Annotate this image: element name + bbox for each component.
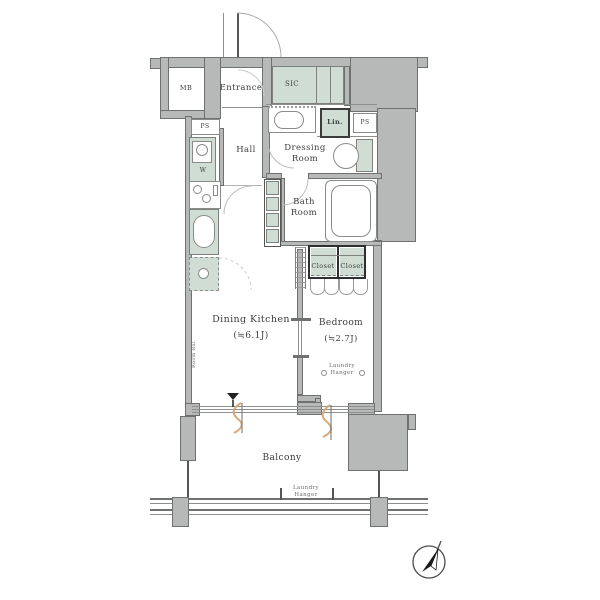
wall-tick-1 — [291, 318, 311, 321]
compass-circle — [413, 546, 445, 578]
balcony-post-line-left — [187, 461, 189, 498]
curtain-left — [234, 403, 242, 433]
dining-kitchen-label: Dining Kitchen — [212, 314, 290, 326]
kitchen-sink — [193, 215, 215, 248]
closet-right-label: Closet — [340, 262, 363, 270]
wall-dk-bedroom-lower — [297, 356, 303, 395]
dining-kitchen-size: (≒6.1J) — [233, 331, 268, 342]
wall-right-upper-column — [377, 108, 416, 242]
wall-hall-washer — [219, 128, 224, 186]
fridge-door-arc — [219, 258, 251, 290]
line-under-sic — [266, 104, 377, 105]
bathtub-inner — [331, 185, 371, 237]
closet-door-arc — [310, 279, 325, 295]
washer-label: W — [200, 167, 207, 175]
sic-divider-2 — [330, 67, 331, 103]
toilet-bowl — [333, 143, 359, 169]
entrance-door-leaf — [237, 13, 239, 57]
hall-label: Hall — [236, 145, 256, 156]
pillar-balcony-left — [180, 416, 196, 461]
balcony-label: Balcony — [263, 453, 302, 464]
hall-door-arc — [224, 186, 252, 214]
door-slide-line-a — [298, 320, 299, 356]
bedroom-label: Bedroom — [319, 318, 363, 329]
line-hall-threshold — [224, 185, 262, 186]
closet-rod-line — [311, 255, 364, 256]
hanger-circle — [359, 370, 365, 376]
closet-left-label: Closet — [311, 262, 334, 270]
storage-cell — [266, 197, 279, 211]
wall-mb-bottom — [160, 110, 207, 119]
washbasin-bowl — [274, 111, 304, 129]
storage-cell — [266, 181, 279, 195]
laundry-hanger-balcony-label: Laundry Hanger — [289, 485, 323, 499]
line-entrance-step — [222, 107, 262, 108]
wall-mb-entrance — [204, 57, 221, 119]
north-arrow-icon-light — [431, 549, 438, 570]
closet-divider — [337, 246, 339, 278]
washer-drum — [196, 144, 208, 156]
balcony-post-line-right — [378, 471, 380, 498]
pillar-bottom-right — [370, 497, 388, 527]
window-line-1 — [192, 406, 374, 407]
wall-dressing-bath-b — [308, 173, 382, 179]
storage-cell — [266, 213, 279, 227]
block-balcony-step — [408, 414, 416, 430]
sic-label: SIC — [285, 80, 299, 89]
entrance-door-arc — [237, 13, 281, 57]
sic-divider-1 — [316, 67, 317, 103]
wall-mb-left — [160, 57, 169, 118]
entrance-label: Entrance — [220, 83, 263, 94]
linen-label: Lin. — [327, 118, 343, 126]
sic-cabinet — [272, 66, 344, 104]
stove-grill — [213, 185, 218, 196]
window-line-2 — [192, 409, 374, 410]
compass-tail — [437, 541, 441, 551]
laundry-hanger-bedroom-label: Laundry Hanger — [325, 363, 359, 377]
window-line-3 — [192, 412, 374, 413]
dressing-room-label: Dressing Room — [277, 143, 333, 165]
wall-entrance-right — [262, 57, 272, 108]
wall-tick-2 — [293, 355, 309, 358]
door-slide-line-b — [301, 320, 302, 356]
side-wall-vertical-label: Room Bal — [191, 341, 197, 368]
bedroom-size: (≒2.7J) — [324, 334, 357, 345]
stove-burner-1 — [193, 185, 202, 194]
closet-door-arc — [324, 279, 339, 295]
storage-cell — [266, 229, 279, 243]
laundry-tick-right — [332, 488, 334, 500]
stove-burner-2 — [202, 194, 211, 203]
faucet-icon — [227, 393, 239, 400]
bath-room-label: Bath Room — [284, 197, 324, 219]
entrance-door-frame — [223, 13, 224, 57]
ps-right-label: PS — [361, 119, 370, 127]
wall-top-right-tick — [417, 57, 428, 68]
closet-door-arc — [353, 279, 368, 295]
pillar-bottom-left — [172, 497, 189, 527]
wall-sic-right — [344, 66, 350, 106]
block-balcony-right — [348, 414, 408, 471]
closet-door-arc — [339, 279, 354, 295]
mb-label: MB — [180, 84, 192, 92]
fridge-mark — [198, 268, 209, 279]
floor-plan: MB SIC Lin. PS PS W Closet Closet — [0, 0, 600, 600]
north-arrow-icon — [422, 549, 438, 572]
ps-left-label: PS — [201, 123, 210, 131]
wall-right-bedroom — [373, 240, 382, 412]
laundry-tick-left — [280, 488, 282, 500]
shelf-hatch-strip — [295, 247, 306, 289]
